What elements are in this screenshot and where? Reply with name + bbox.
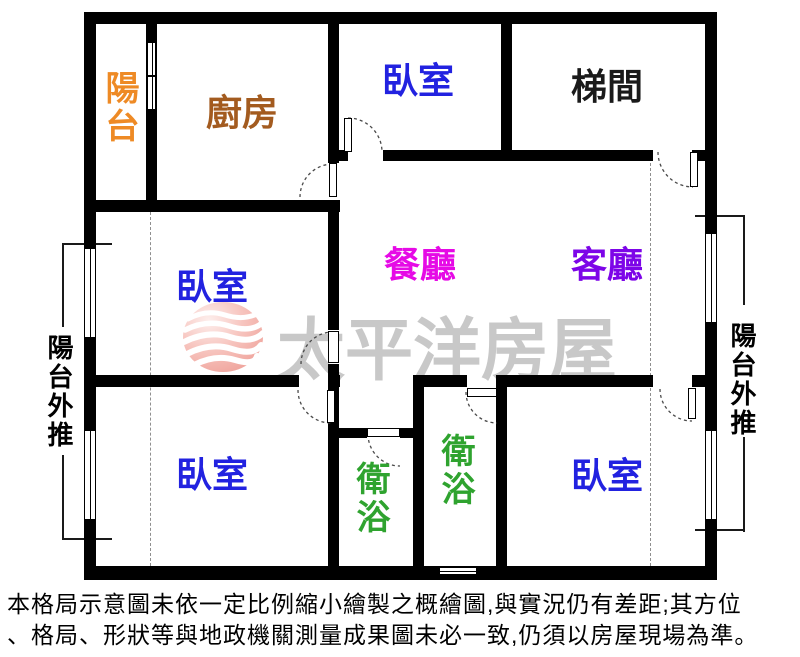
balcony-extension-note-left: 陽台外推 <box>46 334 72 466</box>
door-swing-arc-entry <box>658 152 693 187</box>
door-leaf-bathroom-left <box>367 428 400 437</box>
balcony-extension-note-right: 陽台外推 <box>729 322 755 454</box>
window-balcony-kitchen-pane-2 <box>147 76 156 110</box>
room-label-kitchen: 廚房 <box>203 95 281 131</box>
door-leaf-bedroom-top <box>344 118 352 152</box>
door-leaf-kitchen <box>329 163 337 197</box>
floorplan-image: 太平洋房屋 <box>0 0 800 657</box>
disclaimer-line-2: 、格局、形狀等與地政機關測量成果圖未必一致,仍須以房屋現場為準。 <box>7 616 799 650</box>
disclaimer-line-1: 本格局示意圖未依一定比例縮小繪製之概繪圖,與實況仍有差距;其方位 <box>7 585 799 619</box>
room-label-living: 客廳 <box>568 247 646 283</box>
door-leaf-bedroom-bottom-right <box>688 388 696 419</box>
door-swing-arc-bedroom-top <box>348 118 382 152</box>
room-label-bedroom-bottom-right: 臥室 <box>568 458 646 494</box>
window-left-upper <box>84 248 96 338</box>
room-label-dining: 餐廳 <box>381 247 459 283</box>
room-label-bathroom-middle: 衛浴 <box>438 433 472 527</box>
window-right-upper <box>705 233 717 323</box>
window-balcony-kitchen-pane-1 <box>147 42 156 76</box>
door-leaf-bathroom-middle <box>467 388 497 397</box>
window-left-lower <box>84 430 96 520</box>
door-leaf-bedroom-mid-left <box>328 331 339 363</box>
room-label-bedroom-bottom-left: 臥室 <box>173 457 251 493</box>
room-label-bathroom-left: 衛浴 <box>353 461 387 555</box>
window-right-lower <box>705 430 717 520</box>
room-label-stairwell: 梯間 <box>568 69 646 105</box>
room-label-bedroom-top: 臥室 <box>379 63 457 99</box>
room-label-balcony-top-left: 陽台 <box>102 70 136 164</box>
room-label-bedroom-mid-left: 臥室 <box>173 269 251 305</box>
window-bottom-bathroom <box>439 567 477 575</box>
door-leaf-bedroom-bottom-left <box>327 390 335 423</box>
door-leaf-entry <box>690 152 698 187</box>
